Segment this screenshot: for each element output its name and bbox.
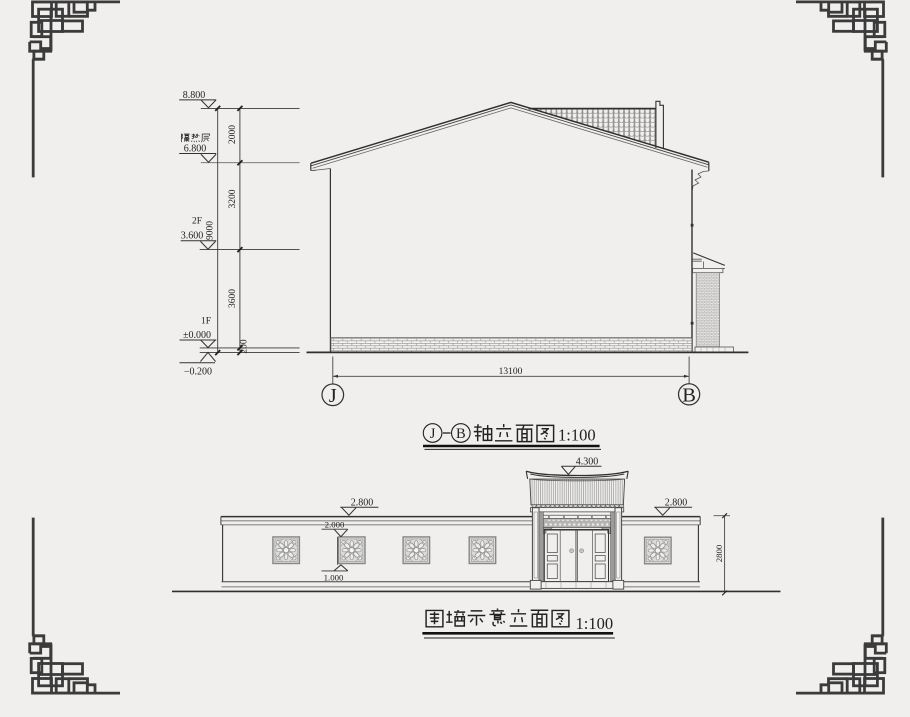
svg-text:200: 200 — [239, 339, 249, 354]
svg-text:13100: 13100 — [499, 367, 523, 377]
svg-text:3200: 3200 — [228, 189, 238, 208]
svg-text:B: B — [456, 426, 466, 442]
svg-text:±0.000: ±0.000 — [183, 330, 211, 341]
svg-text:J: J — [430, 426, 436, 442]
svg-text:8.800: 8.800 — [183, 90, 206, 101]
svg-text:2F: 2F — [192, 217, 202, 227]
svg-text:3600: 3600 — [228, 289, 238, 308]
svg-text:−0.200: −0.200 — [184, 367, 212, 378]
svg-text:B: B — [682, 385, 696, 407]
svg-text:9000: 9000 — [206, 221, 216, 240]
svg-text:1:100: 1:100 — [576, 614, 614, 633]
svg-text:1:100: 1:100 — [558, 425, 596, 444]
svg-text:2.800: 2.800 — [351, 497, 374, 508]
svg-text:2.000: 2.000 — [325, 519, 345, 529]
svg-text:1.000: 1.000 — [324, 573, 344, 583]
svg-text:2.800: 2.800 — [665, 497, 688, 508]
svg-text:2800: 2800 — [714, 544, 724, 562]
svg-text:2000: 2000 — [228, 125, 238, 144]
svg-text:1F: 1F — [201, 317, 211, 327]
svg-text:6.800: 6.800 — [184, 144, 207, 155]
svg-text:3.600: 3.600 — [181, 231, 204, 242]
svg-text:J: J — [329, 385, 337, 407]
svg-text:4.300: 4.300 — [576, 456, 599, 467]
